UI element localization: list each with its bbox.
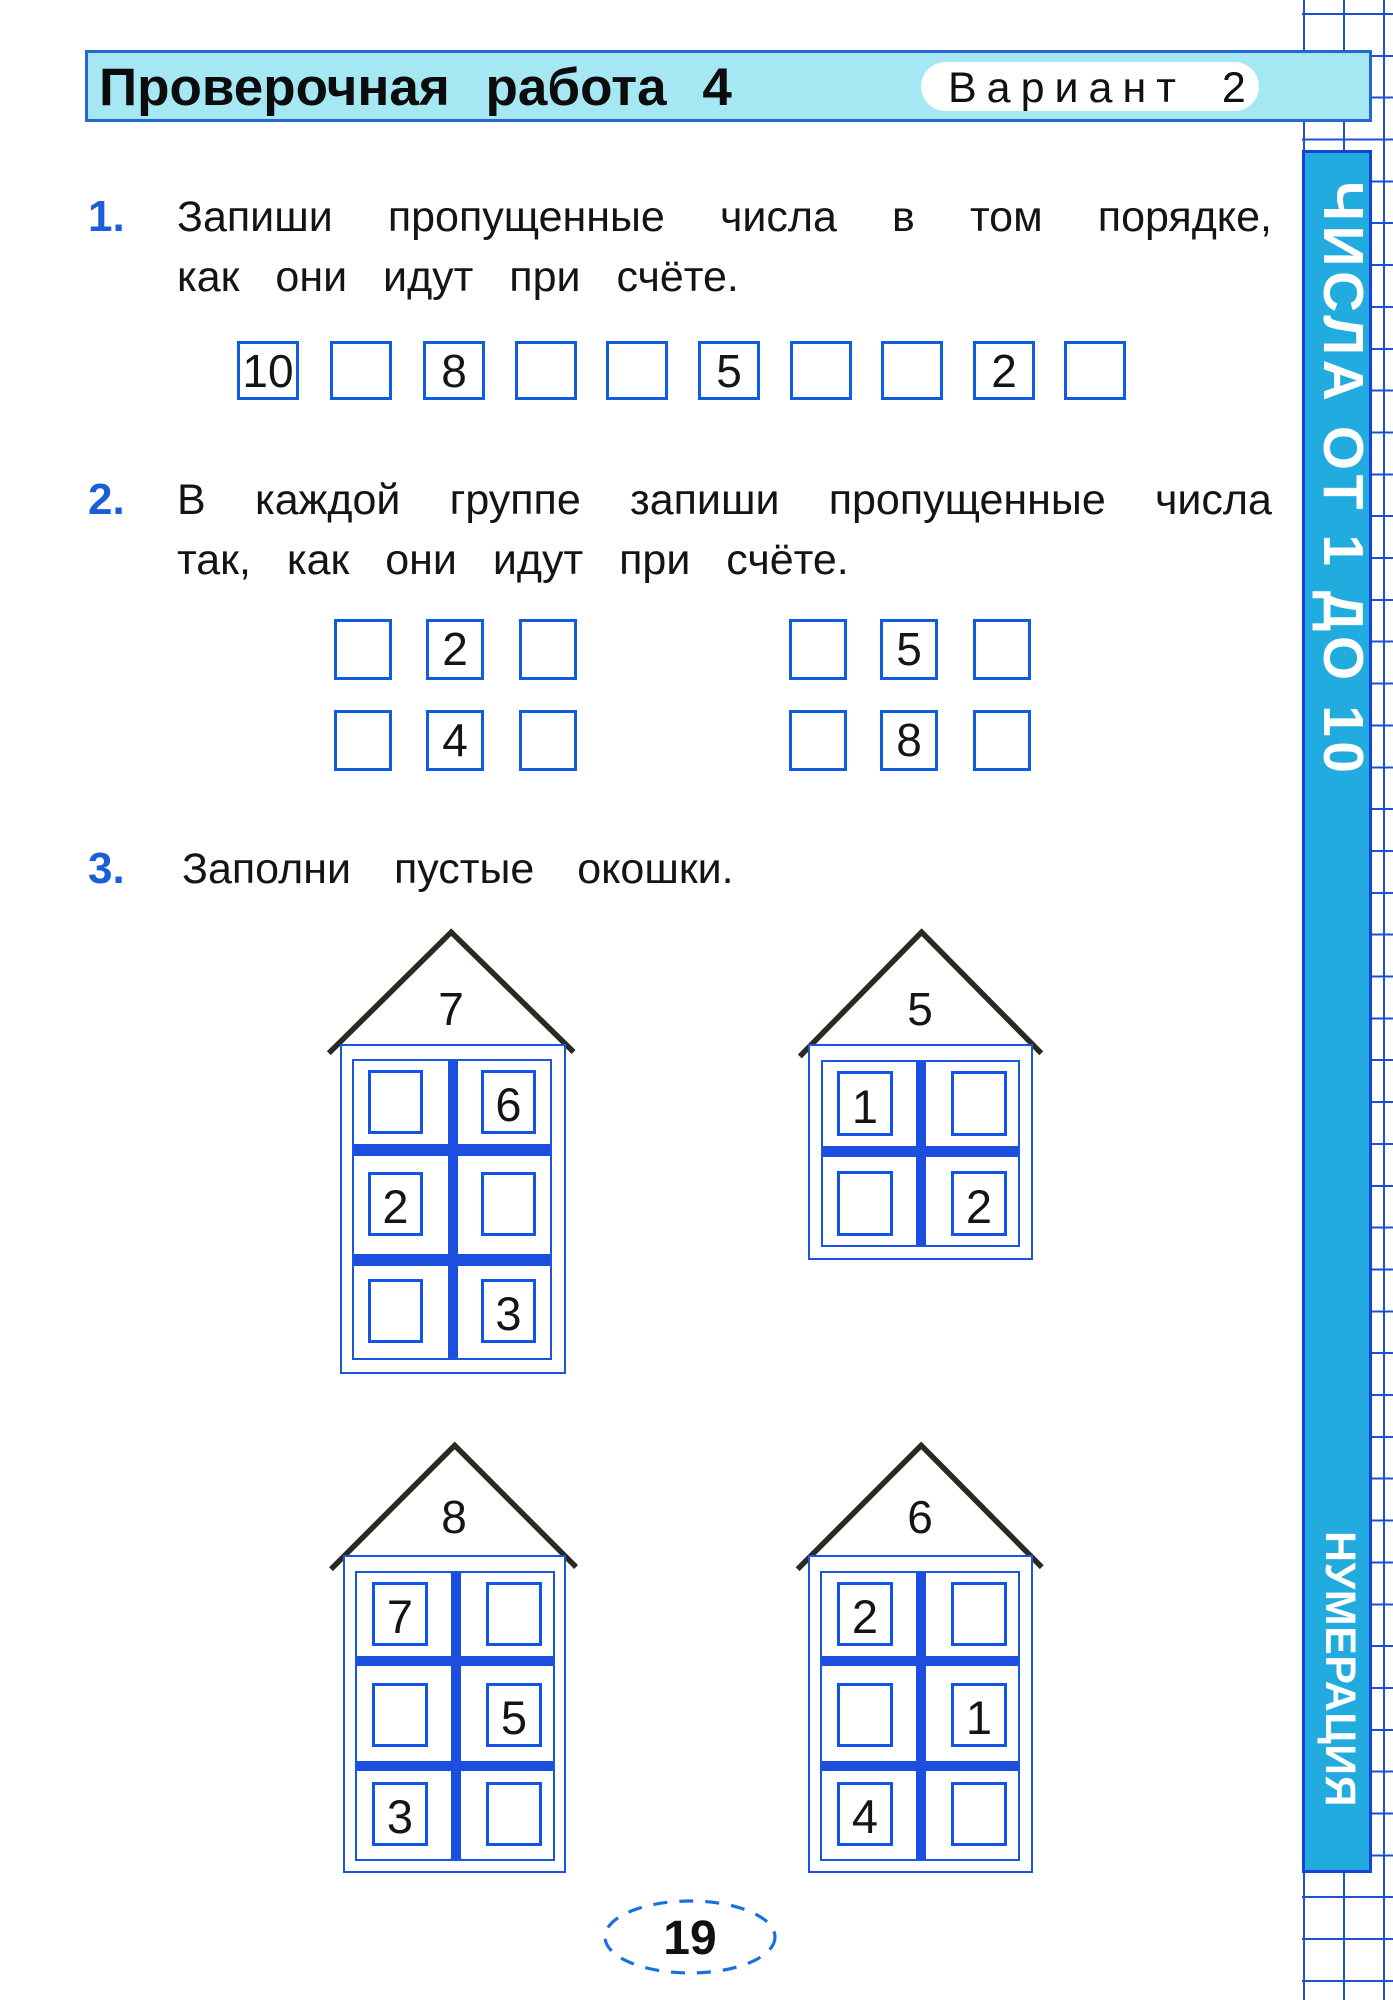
svg-text:19: 19 <box>663 1912 716 1965</box>
